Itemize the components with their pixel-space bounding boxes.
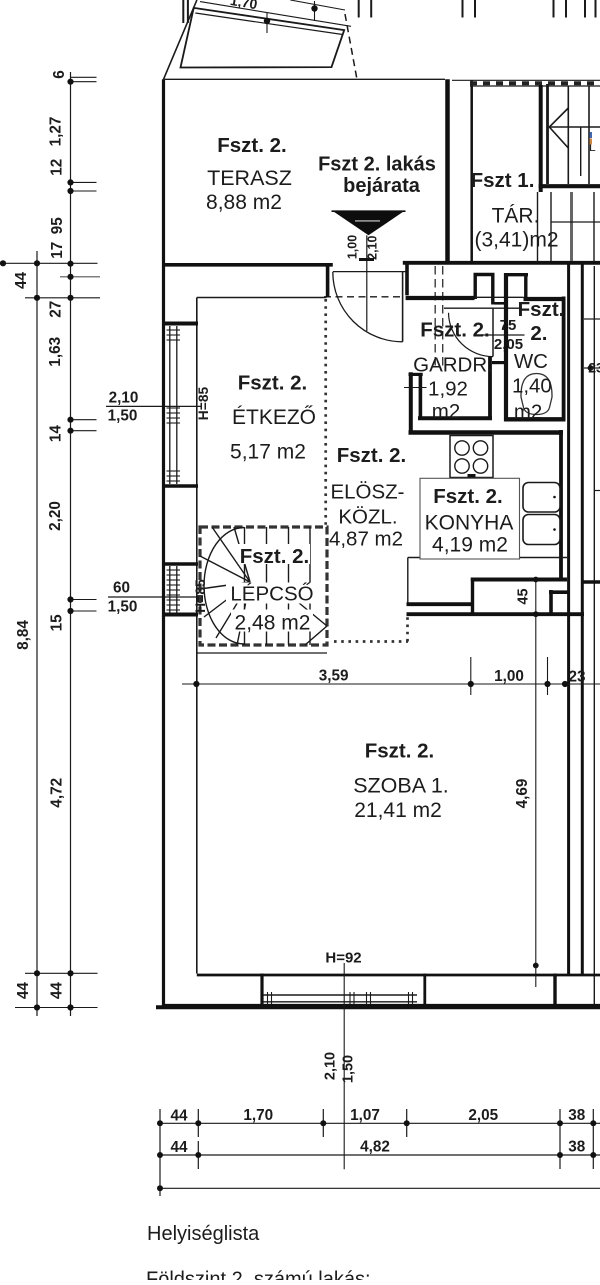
- svg-text:23: 23: [588, 360, 600, 376]
- svg-text:1,92: 1,92: [428, 378, 468, 401]
- svg-text:1,07: 1,07: [350, 1107, 380, 1124]
- svg-text:Fszt. 2.: Fszt. 2.: [433, 485, 503, 508]
- svg-text:5,17 m2: 5,17 m2: [230, 441, 306, 464]
- svg-text:23: 23: [568, 669, 585, 686]
- svg-text:TERASZ: TERASZ: [207, 166, 292, 190]
- svg-text:2,05: 2,05: [468, 1107, 498, 1124]
- svg-text:m2: m2: [514, 401, 542, 424]
- svg-text:2.: 2.: [530, 322, 547, 345]
- svg-text:H=92: H=92: [325, 950, 361, 967]
- svg-text:3,59: 3,59: [319, 668, 349, 685]
- svg-text:WC: WC: [514, 350, 548, 373]
- svg-text:Helyiséglista: Helyiséglista: [147, 1223, 260, 1245]
- svg-text:60: 60: [113, 580, 130, 597]
- svg-text:1,00: 1,00: [494, 668, 524, 685]
- svg-text:SZOBA 1.: SZOBA 1.: [353, 774, 449, 798]
- svg-text:17: 17: [49, 242, 66, 259]
- svg-text:2,10: 2,10: [323, 1052, 339, 1080]
- svg-text:44: 44: [13, 272, 30, 290]
- svg-text:Fszt 2. lakás: Fszt 2. lakás: [318, 154, 436, 176]
- svg-text:1,50: 1,50: [108, 408, 138, 425]
- svg-text:44: 44: [170, 1108, 188, 1125]
- svg-text:ELÖSZ-: ELÖSZ-: [330, 481, 404, 504]
- svg-text:38: 38: [568, 1139, 586, 1156]
- svg-text:4,87 m2: 4,87 m2: [329, 528, 403, 551]
- svg-text:Fszt. 2.: Fszt. 2.: [420, 319, 490, 342]
- svg-text:ÉTKEZŐ: ÉTKEZŐ: [232, 406, 316, 429]
- svg-text:Fszt. 2.: Fszt. 2.: [240, 545, 310, 568]
- svg-text:1,70: 1,70: [243, 1107, 273, 1124]
- svg-text:44: 44: [170, 1139, 188, 1156]
- svg-text:4,19 m2: 4,19 m2: [432, 534, 508, 557]
- svg-text:8,88 m2: 8,88 m2: [206, 191, 282, 214]
- svg-text:15: 15: [49, 614, 66, 632]
- svg-text:2,10: 2,10: [366, 235, 380, 259]
- svg-text:44: 44: [49, 982, 66, 1000]
- svg-text:1,40: 1,40: [512, 375, 552, 398]
- svg-text:8,84: 8,84: [15, 620, 32, 650]
- svg-text:6: 6: [51, 70, 68, 79]
- svg-text:1,00: 1,00: [346, 235, 360, 259]
- svg-text:m2: m2: [432, 400, 460, 423]
- svg-text:GARDR.: GARDR.: [413, 354, 493, 377]
- svg-text:Fszt. 2.: Fszt. 2.: [365, 740, 435, 763]
- svg-text:1,50: 1,50: [341, 1055, 357, 1083]
- svg-text:KONYHA: KONYHA: [425, 512, 514, 535]
- svg-text:Földszint 2. számú lakás:: Földszint 2. számú lakás:: [146, 1269, 371, 1281]
- svg-text:12: 12: [49, 159, 66, 176]
- svg-text:45: 45: [516, 588, 532, 604]
- svg-text:Fszt. 2.: Fszt. 2.: [217, 134, 287, 157]
- svg-text:2,20: 2,20: [47, 501, 64, 531]
- svg-text:Fszt. 2.: Fszt. 2.: [238, 372, 308, 395]
- svg-text:95: 95: [49, 217, 66, 235]
- svg-text:H=85: H=85: [196, 386, 211, 420]
- svg-text:bejárata: bejárata: [343, 175, 421, 197]
- svg-text:21,41 m2: 21,41 m2: [354, 799, 442, 822]
- svg-text:27: 27: [48, 301, 65, 318]
- svg-text:H=85: H=85: [193, 579, 208, 613]
- svg-text:14: 14: [48, 425, 65, 443]
- svg-text:1,27: 1,27: [48, 117, 65, 147]
- svg-text:4,69: 4,69: [514, 779, 531, 809]
- svg-text:TÁR.: TÁR.: [492, 205, 540, 228]
- svg-text:44: 44: [15, 982, 32, 1000]
- svg-text:1,50: 1,50: [108, 599, 138, 616]
- svg-text:2,48 m2: 2,48 m2: [235, 612, 311, 635]
- svg-text:KÖZL.: KÖZL.: [338, 506, 397, 529]
- svg-text:(3,41)m2: (3,41)m2: [474, 229, 558, 252]
- svg-text:Fszt.: Fszt.: [518, 298, 565, 321]
- svg-text:4,72: 4,72: [49, 778, 66, 808]
- svg-text:4,82: 4,82: [360, 1139, 390, 1156]
- svg-text:Fszt. 2.: Fszt. 2.: [337, 444, 407, 467]
- svg-text:LÉPCSŐ: LÉPCSŐ: [230, 583, 313, 606]
- svg-text:2,10: 2,10: [109, 390, 139, 407]
- svg-text:Fszt 1.: Fszt 1.: [471, 169, 535, 192]
- svg-text:38: 38: [568, 1107, 586, 1124]
- svg-text:1,63: 1,63: [47, 337, 64, 367]
